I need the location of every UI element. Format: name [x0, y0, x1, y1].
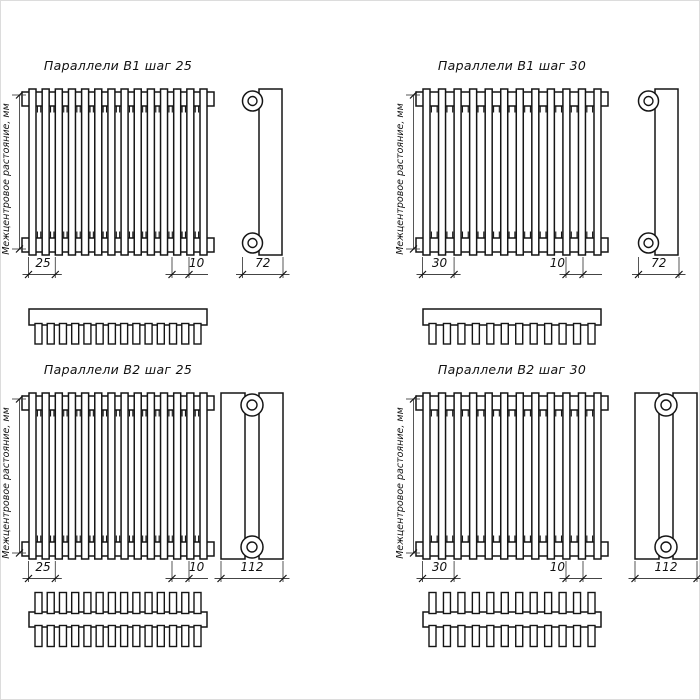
step-dimension-value: 30	[419, 257, 460, 270]
depth-dimension-value: 72	[637, 257, 682, 270]
center-distance-dimension	[406, 92, 420, 253]
step-dimension-value: 25	[25, 561, 61, 574]
tube-width-dimension-value: 10	[189, 561, 217, 574]
quadrant-parallels-b1-step30: Параллели В1 шаг 30 Межцентровое растоян…	[351, 53, 700, 353]
center-distance-dimension	[406, 396, 420, 557]
front-view	[416, 89, 608, 255]
front-view	[416, 393, 608, 559]
tube-width-dimension-value: 10	[549, 561, 565, 574]
side-view	[632, 89, 686, 278]
drawing-title: Параллели В1 шаг 30	[402, 58, 622, 74]
drawing-title: Параллели В2 шаг 25	[8, 362, 228, 378]
side-view	[215, 393, 290, 582]
quadrant-parallels-b2-step25: Параллели В2 шаг 25 Межцентровое растоян…	[1, 357, 351, 657]
depth-dimension-value: 112	[633, 561, 699, 574]
depth-dimension-value: 72	[241, 257, 286, 270]
front-view	[22, 89, 214, 255]
top-view	[423, 593, 601, 647]
drawing-title: Параллели В1 шаг 25	[8, 58, 228, 74]
drawing-title: Параллели В2 шаг 30	[402, 362, 622, 378]
quadrant-parallels-b2-step30: Параллели В2 шаг 30 Межцентровое растоян…	[351, 357, 700, 657]
front-view	[22, 393, 214, 559]
quadrant-parallels-b1-step25: Параллели В1 шаг 25 Межцентровое растоян…	[1, 53, 351, 353]
center-distance-dimension	[12, 396, 26, 557]
technical-drawing-canvas: Параллели В1 шаг 25 Межцентровое растоян…	[0, 0, 700, 700]
center-distance-label: Межцентровое растояние, мм	[2, 397, 12, 569]
radiator-views-b2-step25	[1, 357, 361, 657]
step-dimension-value: 30	[419, 561, 460, 574]
top-view	[29, 593, 207, 647]
depth-dimension-value: 112	[219, 561, 285, 574]
tube-width-dimension-value: 10	[549, 257, 565, 270]
tube-width-dimension-value: 10	[189, 257, 217, 270]
center-distance-label: Межцентровое растояние, мм	[2, 93, 12, 265]
center-distance-label: Межцентровое растояние, мм	[396, 397, 406, 569]
top-view	[423, 309, 601, 344]
side-view	[236, 89, 290, 278]
top-view	[29, 309, 207, 344]
side-view	[629, 393, 700, 582]
center-distance-label: Межцентровое растояние, мм	[396, 93, 406, 265]
center-distance-dimension	[12, 92, 26, 253]
radiator-views-b1-step25	[1, 53, 361, 353]
step-dimension-value: 25	[25, 257, 61, 270]
